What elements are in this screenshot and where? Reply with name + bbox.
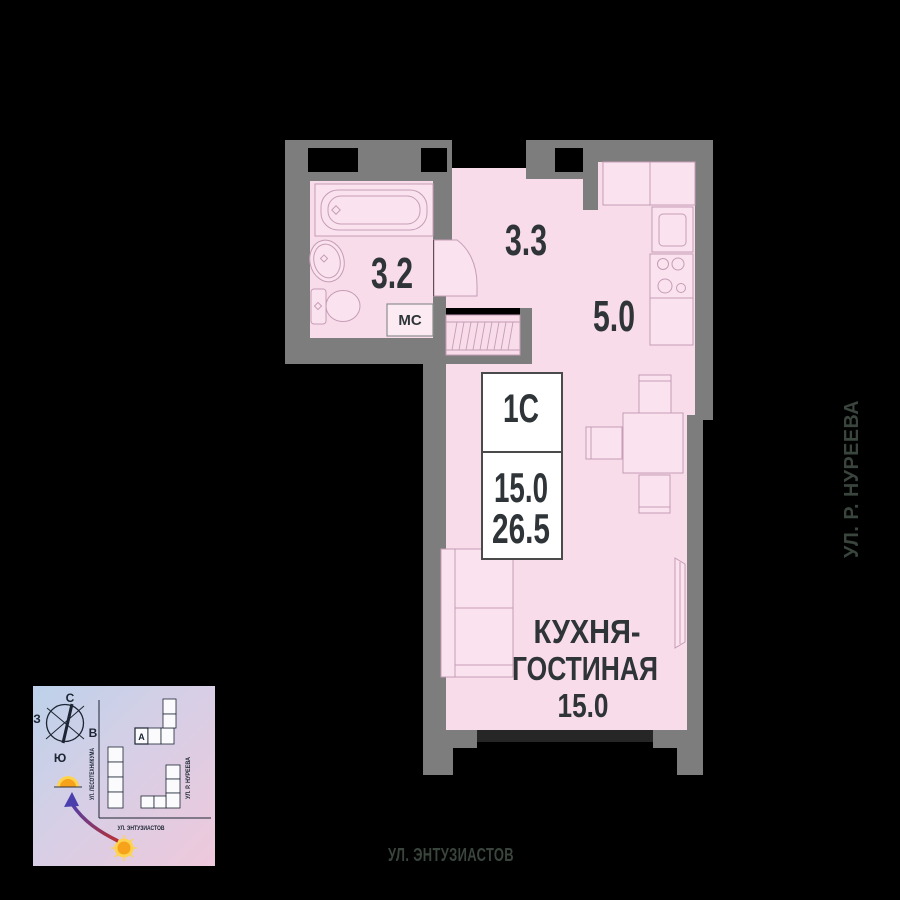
bathtub (315, 184, 433, 236)
bottom-window-opening (477, 730, 653, 742)
minimap-street-right: УЛ. Р. НУРЕЕВА (186, 756, 192, 799)
room-label-bathroom: 3.2 (371, 249, 413, 298)
minimap: А С Ю З В УЛ. ЛЕСОТЕХНИКУМА УЛ. Р. НУРЕЕ… (33, 686, 215, 866)
apartment-type-label: 1С (503, 387, 539, 431)
hob (650, 254, 693, 298)
room-label-kitchen: 5.0 (593, 292, 635, 341)
room-label-hallway: 3.3 (505, 216, 547, 265)
minimap-street-left: УЛ. ЛЕСОТЕХНИКУМА (90, 747, 96, 800)
compass-south: Ю (54, 751, 66, 765)
wall-kitchen-divider (583, 140, 598, 210)
toilet (311, 289, 360, 324)
wall-left-bathroom (285, 140, 310, 364)
wardrobe-hatch (446, 315, 520, 355)
pillar-notch (453, 748, 477, 775)
wall-wardrobe-right (520, 308, 532, 364)
kitchen-counter (650, 298, 693, 345)
dining-table (623, 413, 683, 473)
compass-east: В (89, 726, 98, 740)
info-box: 1С 15.0 26.5 (482, 373, 562, 559)
kitchen-sink (652, 207, 693, 252)
compass-west: З (33, 712, 41, 726)
kitchen-cabinet (603, 162, 650, 205)
radiator (675, 558, 685, 648)
shaft-notch (555, 148, 583, 172)
street-label-bottom: УЛ. ЭНТУЗИАСТОВ (388, 845, 514, 865)
wall-right-lower (687, 415, 703, 730)
minimap-building-label: А (138, 732, 145, 742)
room-label-living-line2: ГОСТИНАЯ (512, 650, 658, 687)
washing-machine-box: МС (387, 304, 433, 336)
living-area-value: 15.0 (494, 464, 548, 511)
wall-bathroom-right (433, 181, 452, 240)
sofa (441, 549, 513, 677)
total-area-value: 26.5 (492, 505, 550, 552)
shaft-notch (421, 148, 447, 172)
floorplan-canvas: МС (0, 0, 900, 900)
room-label-living-area: 15.0 (558, 687, 609, 724)
compass-north: С (66, 691, 75, 705)
pillar-notch (653, 748, 677, 775)
shaft-notch (308, 148, 358, 172)
minimap-street-bottom: УЛ. ЭНТУЗИАСТОВ (118, 825, 165, 832)
street-label-right: УЛ. Р. НУРЕЕВА (841, 400, 863, 558)
wall-door-pier (433, 296, 446, 338)
room-label-living-line1: КУХНЯ- (534, 613, 641, 650)
washing-machine-label: МС (398, 312, 421, 329)
kitchen-cabinet (650, 162, 695, 205)
wall-right-upper (695, 140, 713, 420)
